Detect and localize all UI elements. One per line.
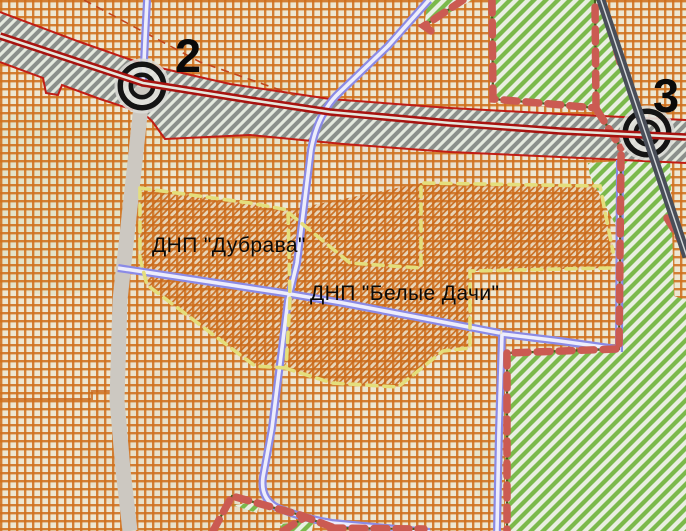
marker-3-number: 3 <box>653 69 679 122</box>
zone-label-dubrava: ДНП "Дубрава" <box>152 234 306 257</box>
zone-label-belye-dachi: ДНП "Белые Дачи" <box>310 282 499 305</box>
zoning-map: ДНП "Дубрава" ДНП "Белые Дачи" 2 3 <box>0 0 686 531</box>
marker-2-number: 2 <box>175 29 201 82</box>
